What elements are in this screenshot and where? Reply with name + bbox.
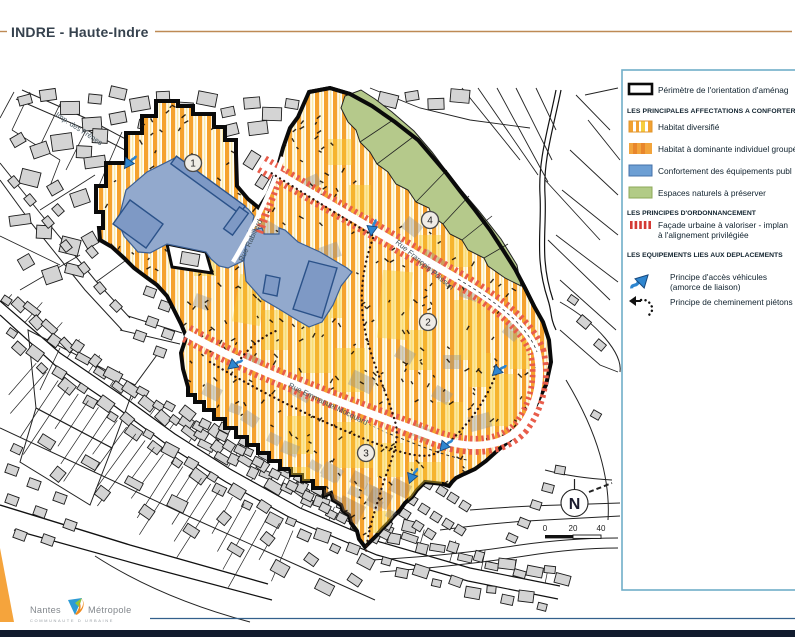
svg-text:Périmètre de l'orientation d'a: Périmètre de l'orientation d'aménag	[658, 85, 789, 95]
svg-text:0: 0	[543, 524, 548, 533]
svg-text:COMMUNAUTE D URBAINE: COMMUNAUTE D URBAINE	[30, 618, 114, 623]
svg-text:Habitat à dominante individuel: Habitat à dominante individuel groupé	[658, 144, 795, 154]
svg-text:LES PRINCIPES D'ORDONNANCEMENT: LES PRINCIPES D'ORDONNANCEMENT	[627, 210, 757, 217]
svg-text:à l'alignement privilégiée: à l'alignement privilégiée	[658, 230, 749, 240]
svg-text:2: 2	[425, 318, 431, 329]
svg-text:Nantes: Nantes	[30, 605, 61, 615]
svg-text:20: 20	[569, 524, 578, 533]
svg-text:Espaces naturels à préserver: Espaces naturels à préserver	[658, 188, 766, 198]
svg-text:Confortement des équipements p: Confortement des équipements publ	[658, 166, 792, 176]
svg-text:INDRE - Haute-Indre: INDRE - Haute-Indre	[11, 24, 149, 40]
svg-text:3: 3	[363, 449, 369, 460]
svg-text:4: 4	[427, 216, 433, 227]
svg-text:LES PRINCIPALES AFFECTATIONS A: LES PRINCIPALES AFFECTATIONS A CONFORTER…	[627, 108, 795, 115]
svg-text:Principe de cheminement piéton: Principe de cheminement piétons -	[670, 297, 795, 307]
svg-text:40: 40	[597, 524, 606, 533]
svg-text:(amorce de liaison): (amorce de liaison)	[670, 282, 741, 292]
svg-text:LES EQUIPEMENTS LIES AUX DEPLA: LES EQUIPEMENTS LIES AUX DEPLACEMENTS	[627, 252, 783, 259]
svg-text:Principe d'accès véhicules: Principe d'accès véhicules	[670, 272, 767, 282]
svg-text:N: N	[569, 496, 581, 513]
svg-text:Métropole: Métropole	[88, 605, 132, 615]
svg-text:Façade urbaine à valoriser - i: Façade urbaine à valoriser - implan	[658, 220, 788, 230]
svg-text:Habitat diversifié: Habitat diversifié	[658, 122, 720, 132]
svg-text:1: 1	[190, 159, 196, 170]
